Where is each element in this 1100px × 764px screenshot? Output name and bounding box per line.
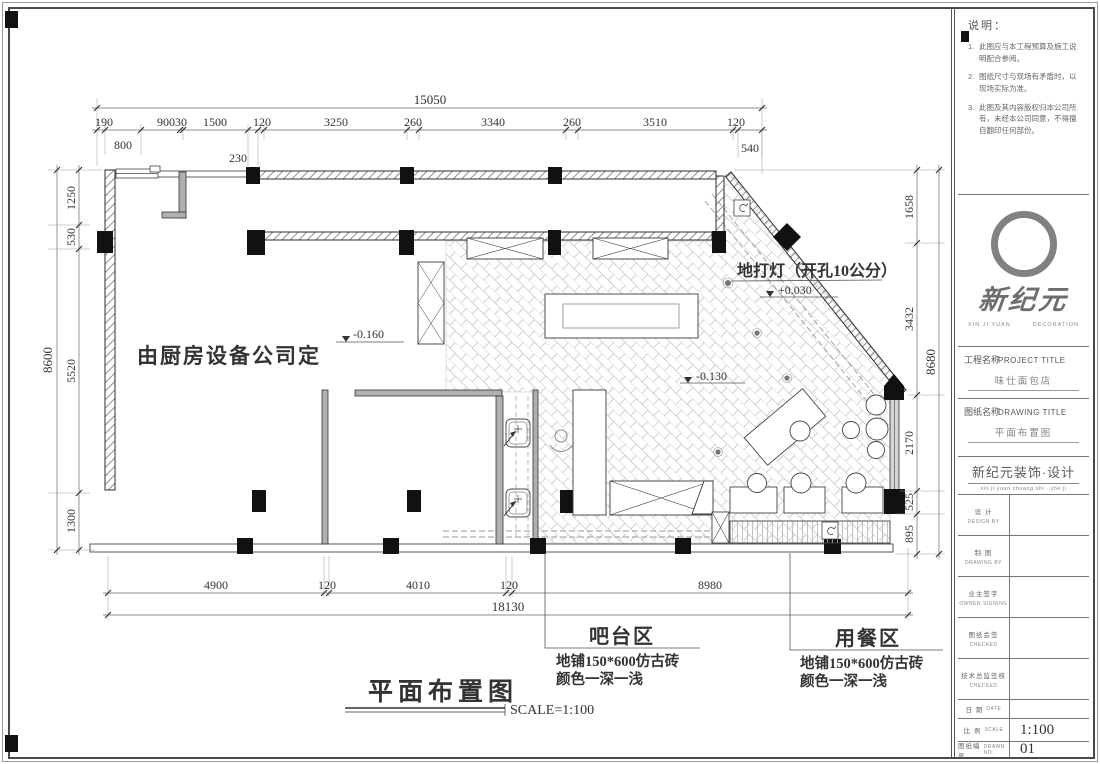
svg-text:1500: 1500: [203, 115, 227, 129]
svg-text:540: 540: [741, 141, 759, 155]
company-section: 新纪元装饰·设计 xin ji yuan zhuang shi · she ji: [958, 457, 1089, 495]
titleblock-row: 技术总监签核 CHECKED: [958, 659, 1089, 700]
floor-plan-drawing: 15050 190 90030 1500 120 3250 260 3340 2…: [0, 0, 955, 764]
note-item: 1. 此图应与本工程预算及施工说明配合参阅。: [968, 41, 1081, 64]
drawing-title-section: 图纸名称DRAWING TITLE 平面布置图: [958, 399, 1089, 457]
svg-text:-0.160: -0.160: [353, 327, 384, 341]
svg-text:-0.130: -0.130: [696, 369, 727, 383]
note-item: 2. 图纸尺寸与现场有矛盾时，以现场实际为准。: [968, 71, 1081, 94]
svg-text:120: 120: [253, 115, 271, 129]
svg-text:1658: 1658: [902, 195, 916, 219]
svg-text:120: 120: [500, 578, 518, 592]
drawing-name: 平面布置图: [968, 425, 1079, 443]
svg-text:8980: 8980: [698, 578, 722, 592]
svg-text:吧台区: 吧台区: [589, 624, 655, 648]
notes-section: 说明： 1. 此图应与本工程预算及施工说明配合参阅。 2. 图纸尺寸与现场有矛盾…: [958, 9, 1089, 195]
date-row: 日 期 DATE: [958, 700, 1089, 719]
project-label: 工程名称: [964, 355, 1000, 365]
company-name: 新纪元装饰·设计: [968, 462, 1079, 484]
project-title-section: 工程名称PROJECT TITLE 味仕面包店: [958, 347, 1089, 399]
company-pinyin: xin ji yuan zhuang shi · she ji: [958, 486, 1089, 492]
svg-text:平面布置图: 平面布置图: [368, 677, 518, 706]
titleblock-row: 图纸会签 CHECKED: [958, 618, 1089, 659]
titleblock-row: 制 图 DRAWING BY: [958, 536, 1089, 577]
svg-text:地铺150*600仿古砖: 地铺150*600仿古砖: [800, 654, 924, 672]
svg-text:4900: 4900: [204, 578, 228, 592]
svg-text:1300: 1300: [64, 509, 78, 533]
svg-text:1250: 1250: [64, 186, 78, 210]
notes-title: 说明：: [968, 17, 1081, 33]
svg-text:190: 190: [95, 115, 113, 129]
drawing-scale: SCALE=1:100: [510, 703, 594, 718]
bar-area-label: 吧台区 地铺150*600仿古砖 颜色一深一浅: [545, 553, 700, 688]
svg-text:530: 530: [64, 228, 78, 246]
logo-ring-icon: [991, 211, 1057, 277]
titleblock-panel: 说明： 1. 此图应与本工程预算及施工说明配合参阅。 2. 图纸尺寸与现场有矛盾…: [958, 9, 1089, 755]
svg-text:800: 800: [114, 138, 132, 152]
svg-text:3510: 3510: [643, 115, 667, 129]
level-kitchen: -0.160: [336, 327, 404, 342]
logo-subtitle: XIN JI YUAN DECORATION: [958, 314, 1089, 328]
svg-text:4010: 4010: [406, 578, 430, 592]
date-value: [1010, 700, 1089, 718]
svg-text:120: 120: [727, 115, 745, 129]
company-logo: 新纪元: [957, 287, 1091, 314]
note-item: 3. 此图及其内容版权归本公司所有，未经本公司同意，不得擅自翻印任何部份。: [968, 102, 1081, 137]
svg-text:230: 230: [229, 151, 247, 165]
svg-text:3432: 3432: [902, 307, 916, 331]
svg-text:用餐区: 用餐区: [835, 626, 901, 650]
svg-text:2170: 2170: [902, 431, 916, 455]
svg-text:颜色一深一浅: 颜色一深一浅: [556, 670, 643, 688]
svg-text:90030: 90030: [157, 115, 187, 129]
dining-area-label: 用餐区 地铺150*600仿古砖 颜色一深一浅: [790, 553, 943, 690]
drawing-label: 图纸名称: [964, 407, 1000, 417]
svg-text:颜色一深一浅: 颜色一深一浅: [800, 672, 887, 690]
svg-text:260: 260: [404, 115, 422, 129]
svg-text:5520: 5520: [64, 359, 78, 383]
floor-light-callout: 地打灯（开孔10公分）: [731, 261, 897, 281]
kitchen-note: 由厨房设备公司定: [137, 344, 321, 368]
svg-text:525: 525: [902, 493, 916, 511]
logo-section: 新纪元 XIN JI YUAN DECORATION: [958, 195, 1089, 347]
svg-text:+0.030: +0.030: [778, 283, 812, 297]
svg-text:3340: 3340: [481, 115, 505, 129]
project-name: 味仕面包店: [968, 373, 1079, 391]
titleblock-row: 设 计 DESIGN BY: [958, 495, 1089, 536]
dim-right-total: 8680: [923, 349, 938, 375]
dim-bottom-total: 18130: [492, 599, 525, 614]
scale-value: 1:100: [1010, 719, 1089, 741]
svg-text:地铺150*600仿古砖: 地铺150*600仿古砖: [556, 652, 680, 670]
basin-fixtures: [504, 396, 530, 540]
entry-window: [116, 166, 160, 178]
titleblock-row: 业主签字 OWNER SIGNING: [958, 577, 1089, 618]
svg-text:260: 260: [563, 115, 581, 129]
svg-text:地打灯（开孔10公分）: 地打灯（开孔10公分）: [737, 261, 897, 280]
svg-text:3250: 3250: [324, 115, 348, 129]
svg-text:895: 895: [902, 525, 916, 543]
svg-text:120: 120: [318, 578, 336, 592]
dim-top-total: 15050: [414, 92, 447, 107]
sheet-number-row: 图纸编号 DRAWN NO. 01: [958, 742, 1089, 757]
dim-left-total: 8600: [40, 347, 55, 373]
sheet-number-value: 01: [1010, 742, 1089, 757]
